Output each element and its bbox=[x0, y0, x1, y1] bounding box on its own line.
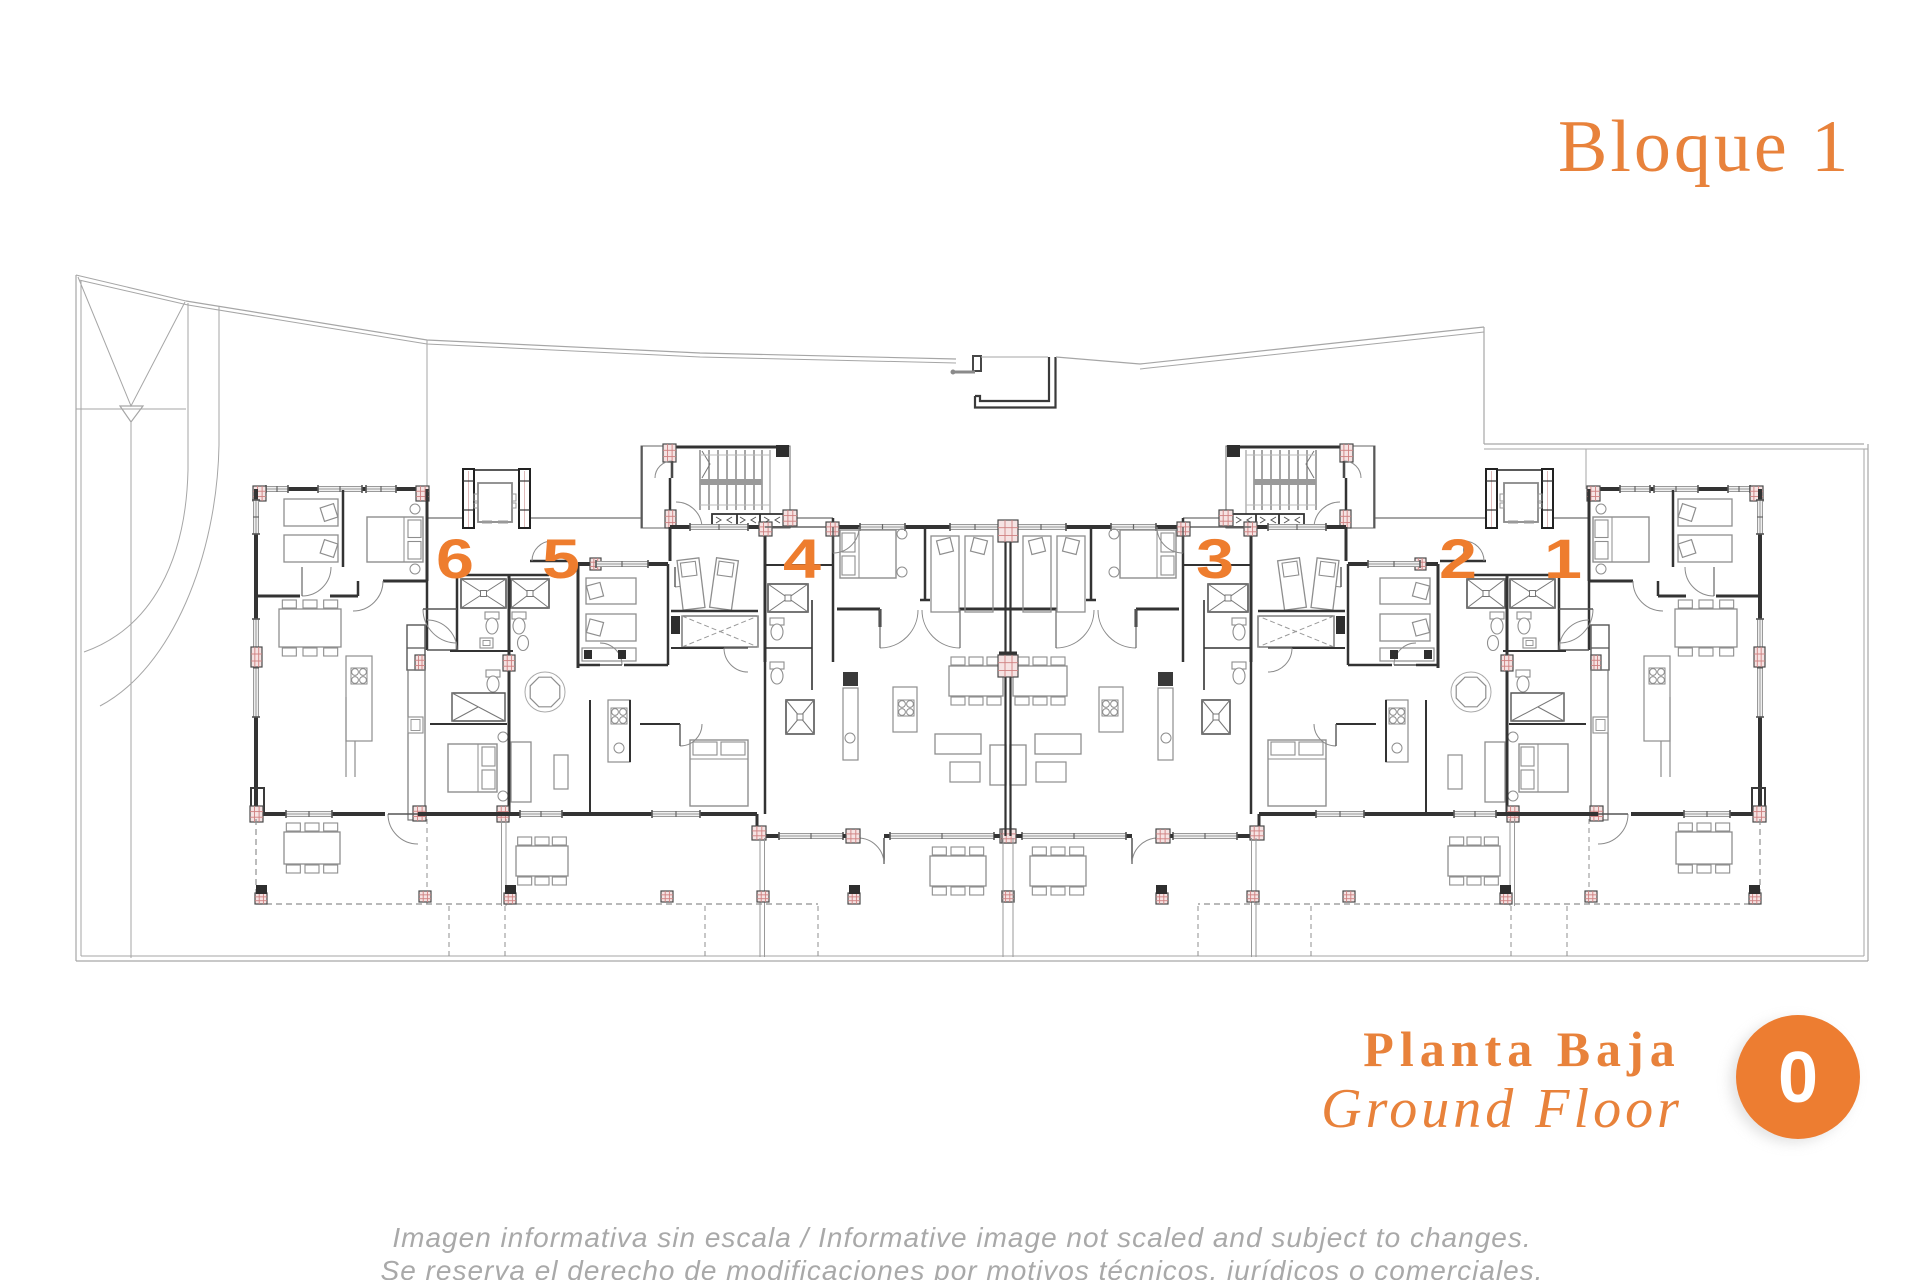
svg-text:0: 0 bbox=[1778, 1038, 1818, 1118]
svg-text:6: 6 bbox=[436, 528, 474, 591]
svg-text:Ground Floor: Ground Floor bbox=[1321, 1078, 1683, 1140]
svg-text:Se reserva el derecho de modif: Se reserva el derecho de modificaciones … bbox=[381, 1255, 1544, 1280]
svg-text:4: 4 bbox=[783, 528, 821, 591]
svg-text:1: 1 bbox=[1544, 528, 1582, 591]
svg-text:Planta Baja: Planta Baja bbox=[1363, 1021, 1680, 1077]
svg-text:Imagen informativa sin escala: Imagen informativa sin escala / Informat… bbox=[392, 1222, 1531, 1253]
svg-text:3: 3 bbox=[1196, 528, 1234, 591]
svg-text:5: 5 bbox=[542, 528, 580, 591]
svg-text:2: 2 bbox=[1439, 528, 1477, 591]
svg-text:Bloque 1: Bloque 1 bbox=[1558, 106, 1851, 188]
